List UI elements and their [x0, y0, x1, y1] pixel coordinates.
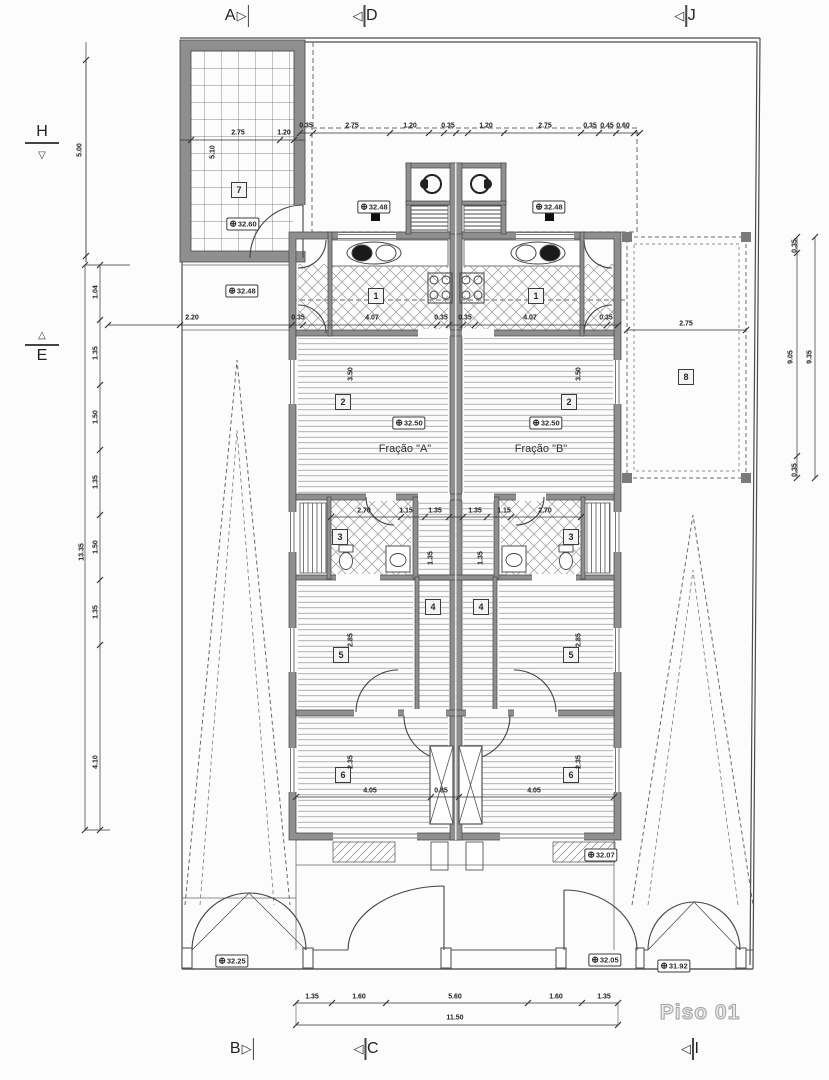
dimension-label: 2.85 — [576, 633, 583, 647]
section-label: C — [367, 1040, 379, 1058]
dimension-label: 1.04 — [93, 285, 100, 299]
room-number-patio: 8 — [678, 369, 694, 385]
section-label: I — [695, 1040, 699, 1058]
section-arrow-left-icon: ◁ — [353, 1041, 363, 1057]
dimension-label: 9.05 — [788, 350, 795, 364]
room-number-living-a: 2 — [335, 394, 351, 410]
level-icon: ⊕ — [229, 220, 237, 229]
level-icon: ⊕ — [228, 287, 236, 296]
room-number-living-b: 2 — [561, 394, 577, 410]
room-number-bedroom2-a: 6 — [335, 767, 351, 783]
section-label: D — [366, 7, 378, 25]
dimension-label: 1.35 — [428, 551, 435, 565]
dimension-label: 2.75 — [231, 130, 245, 137]
section-line — [25, 142, 59, 144]
dimension-label: 1.20 — [277, 130, 291, 137]
section-label: H — [36, 123, 48, 140]
dimension-label: 2.70 — [357, 508, 371, 515]
dimension-label: 2.35 — [348, 755, 355, 769]
level-icon: ⊕ — [395, 419, 403, 428]
dimension-label: 0.35 — [792, 463, 799, 477]
level-value: 32.50 — [404, 419, 423, 428]
room-number-bath-b: 3 — [563, 529, 579, 545]
level-icon: ⊕ — [360, 203, 368, 212]
level-icon: ⊕ — [532, 419, 540, 428]
section-marker-c: ◁C — [353, 1038, 378, 1060]
section-arrow-left-icon: ◁ — [352, 8, 362, 24]
level-icon: ⊕ — [218, 957, 226, 966]
plan-geometry — [0, 0, 829, 1080]
dimension-label: 4.07 — [523, 315, 537, 322]
section-line — [685, 5, 687, 27]
level-marker: ⊕32.50 — [392, 417, 425, 430]
section-line — [363, 5, 365, 27]
gates — [192, 886, 740, 950]
dimension-label: 0.35 — [441, 123, 455, 130]
dimension-label: 4.10 — [93, 755, 100, 769]
level-value: 32.50 — [541, 419, 560, 428]
level-marker: ⊕32.50 — [529, 417, 562, 430]
dimension-label: 0.45 — [600, 123, 614, 130]
level-value: 32.05 — [600, 956, 619, 965]
dimension-label: 0.35 — [434, 315, 448, 322]
level-icon: ⊕ — [591, 956, 599, 965]
level-value: 32.25 — [227, 957, 246, 966]
dimension-label: 1.35 — [305, 994, 319, 1001]
room-number-hall-b: 4 — [473, 599, 489, 615]
level-value: 32.48 — [544, 203, 563, 212]
dimension-label: 4.05 — [363, 788, 377, 795]
dimension-label: 5.60 — [448, 994, 462, 1001]
dimension-label: 1.35 — [597, 994, 611, 1001]
dimension-label: 1.15 — [497, 508, 511, 515]
dimension-label: 5.00 — [77, 143, 84, 157]
dimension-label: 5.10 — [210, 145, 217, 159]
room-number-kitchen-b: 1 — [528, 288, 544, 304]
section-arrow-left-icon: ◁ — [674, 8, 684, 24]
section-arrow-left-icon: ◁ — [681, 1041, 691, 1057]
level-marker: ⊕31.92 — [657, 960, 690, 973]
room-number-bedroom2-b: 6 — [563, 767, 579, 783]
section-arrow-right-icon: ▷ — [237, 8, 247, 24]
section-marker-a: A▷ — [225, 5, 249, 27]
room-number-bath-a: 3 — [332, 529, 348, 545]
level-marker: ⊕32.48 — [357, 201, 390, 214]
level-value: 31.92 — [669, 962, 688, 971]
unit-label-a: Fração "A" — [379, 443, 431, 455]
floor-title: Piso 01 — [660, 1001, 741, 1025]
section-arrow-right-icon: ▷ — [242, 1041, 252, 1057]
section-line — [364, 1038, 366, 1060]
dimension-label: 1.35 — [468, 508, 482, 515]
level-icon: ⊕ — [587, 851, 595, 860]
section-label: B — [230, 1040, 241, 1058]
section-marker-e: △ E — [25, 326, 59, 364]
dimension-label: 0.35 — [458, 315, 472, 322]
dimension-label: 4.05 — [527, 788, 541, 795]
section-marker-j: ◁J — [674, 5, 696, 27]
room-number-kitchen-a: 1 — [368, 288, 384, 304]
dimension-label: 3.50 — [348, 367, 355, 381]
dimension-label: 11.50 — [446, 1015, 463, 1022]
dimension-label: 4.07 — [365, 315, 379, 322]
section-line — [248, 5, 250, 27]
dimension-label: 9.35 — [807, 350, 814, 364]
dimension-label: 1.50 — [93, 540, 100, 554]
section-marker-i: ◁I — [681, 1038, 699, 1060]
dimension-label: 1.35 — [93, 605, 100, 619]
unit-label-b: Fração "B" — [515, 443, 567, 455]
section-marker-d: ◁D — [352, 5, 377, 27]
level-marker: ⊕32.60 — [226, 218, 259, 231]
section-arrow-down-icon: ▽ — [38, 150, 46, 161]
level-marker: ⊕32.48 — [225, 285, 258, 298]
dimension-label: 1.35 — [93, 475, 100, 489]
dimension-label: 2.20 — [185, 315, 199, 322]
floor-plan-sheet: A▷ ◁D ◁J B▷ ◁C ◁I H ▽ △ E 7 1 1 2 2 3 3 … — [0, 0, 829, 1080]
dimension-label: 1.20 — [479, 123, 493, 130]
level-value: 32.48 — [237, 287, 256, 296]
room-number-bedroom1-b: 5 — [563, 647, 579, 663]
dimension-label: 2.75 — [679, 321, 693, 328]
level-marker: ⊕32.48 — [532, 201, 565, 214]
dimension-label: 1.20 — [403, 123, 417, 130]
dimension-label: 1.15 — [399, 508, 413, 515]
rear-terrace — [296, 842, 615, 865]
dimension-label: 0.60 — [616, 123, 630, 130]
dimension-label: 1.60 — [549, 994, 563, 1001]
level-value: 32.60 — [238, 220, 257, 229]
section-line — [253, 1038, 255, 1060]
section-label: A — [225, 7, 236, 25]
section-label: J — [688, 7, 696, 25]
room-number-garage: 7 — [231, 182, 247, 198]
level-value: 32.07 — [596, 851, 615, 860]
section-line — [692, 1038, 694, 1060]
dimension-label: 1.35 — [93, 346, 100, 360]
level-marker: ⊕32.25 — [215, 955, 248, 968]
dimension-label: 2.35 — [576, 755, 583, 769]
section-marker-b: B▷ — [230, 1038, 254, 1060]
dimension-label: 2.75 — [538, 123, 552, 130]
dimension-label: 1.50 — [93, 410, 100, 424]
level-value: 32.48 — [369, 203, 388, 212]
dimension-label: 0.35 — [299, 123, 313, 130]
level-marker: ⊕32.07 — [584, 849, 617, 862]
dimension-label: 1.35 — [478, 551, 485, 565]
dimension-label: 13.35 — [79, 543, 86, 561]
level-marker: ⊕32.05 — [588, 954, 621, 967]
dimension-label: 0.85 — [434, 788, 448, 795]
section-marker-h: H ▽ — [25, 124, 59, 162]
level-icon: ⊕ — [535, 203, 543, 212]
dimension-label: 1.60 — [352, 994, 366, 1001]
dimension-label: 3.50 — [576, 367, 583, 381]
level-icon: ⊕ — [660, 962, 668, 971]
dimension-label: 0.35 — [792, 239, 799, 253]
section-line — [25, 344, 59, 346]
section-arrow-up-icon: △ — [38, 330, 46, 341]
dimension-label: 0.35 — [583, 123, 597, 130]
dimension-label: 1.35 — [428, 508, 442, 515]
room-number-hall-a: 4 — [425, 599, 441, 615]
dimension-label: 2.85 — [348, 633, 355, 647]
dimension-label: 0.35 — [291, 315, 305, 322]
section-label: E — [37, 347, 48, 364]
dimension-label: 2.70 — [538, 508, 552, 515]
dimension-label: 2.75 — [345, 123, 359, 130]
dimension-label: 0.35 — [599, 315, 613, 322]
room-number-bedroom1-a: 5 — [333, 647, 349, 663]
